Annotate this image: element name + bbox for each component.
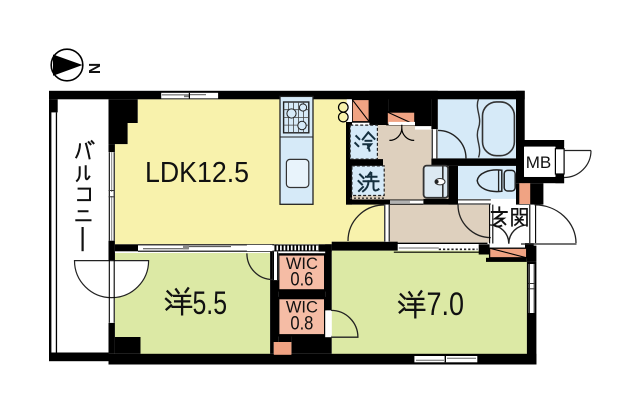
svg-text:5.5: 5.5	[193, 285, 228, 321]
svg-text:MB: MB	[526, 153, 552, 172]
svg-text:7.0: 7.0	[427, 286, 465, 322]
svg-text:0.6: 0.6	[290, 270, 313, 291]
svg-text:LDK12.5: LDK12.5	[145, 157, 249, 189]
svg-text:0.8: 0.8	[290, 313, 313, 334]
svg-text:N: N	[85, 63, 102, 74]
